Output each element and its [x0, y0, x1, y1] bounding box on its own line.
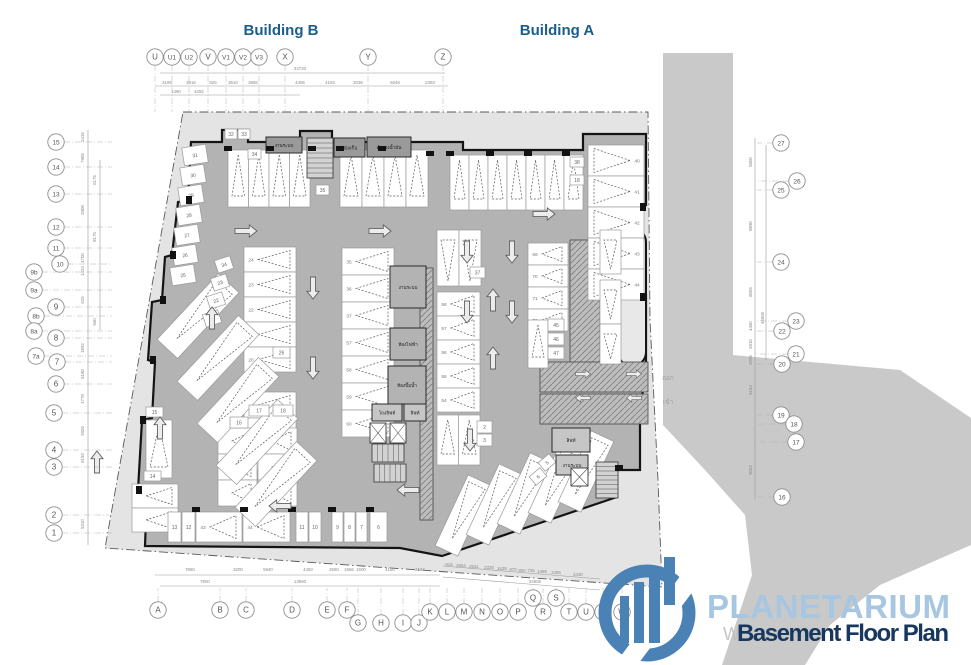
stall-number: 45 — [553, 323, 559, 329]
parking-stall — [437, 230, 459, 286]
dimension-label: 2430 — [573, 572, 583, 577]
stall-number: 46 — [553, 337, 559, 343]
grid-bubble-label: V2 — [239, 55, 247, 62]
grid-bubble-label: 21 — [792, 352, 800, 359]
stall-number: 59 — [346, 394, 352, 400]
stall-number: 16 — [236, 421, 242, 427]
floor-plan-page: 4041424344242322212019353637575859605857… — [0, 0, 971, 665]
dimension-label: 2550 — [329, 567, 339, 572]
wall-segment — [336, 146, 344, 151]
stall-number: 20 — [248, 357, 254, 363]
room-label: งานระบบ — [563, 463, 582, 468]
stall-number: 58 — [441, 302, 447, 308]
grid-bubble-label: I — [402, 619, 404, 628]
stall-number: 43 — [634, 251, 640, 257]
dimension-label: 4450 — [303, 567, 313, 572]
stall-number: 37 — [475, 271, 481, 277]
grid-bubble-label: S — [553, 594, 558, 603]
grid-bubble-label: U — [583, 608, 589, 617]
wall-segment — [640, 293, 646, 301]
grid-bubble-label: 24 — [777, 260, 785, 267]
stall-number: 34 — [252, 152, 258, 158]
stall-number: 36 — [346, 286, 352, 292]
stall-number: 33 — [241, 132, 247, 138]
dimension-label: 3856 — [248, 80, 258, 85]
logo-tagline: Basement Floor Plan — [737, 620, 949, 647]
room-label: ลิฟท์ — [566, 437, 575, 443]
grid-bubble-label: 16 — [778, 495, 786, 502]
dimension-label: 7800 — [200, 579, 210, 584]
dimension-label: 8005 — [748, 287, 753, 297]
dimension-label: 818 — [445, 562, 453, 567]
wall-segment — [640, 203, 646, 211]
grid-bubble-label: V — [205, 53, 211, 62]
grid-bubble-label: 8b — [32, 314, 40, 321]
wall-segment — [366, 507, 374, 512]
grid-bubble-label: U — [152, 53, 158, 62]
dimension-label: 2036 — [353, 80, 363, 85]
grid-bubble-label: 18 — [790, 422, 798, 429]
wall-segment — [524, 151, 532, 156]
stall-number: 70 — [532, 274, 538, 280]
grid-bubble-label: U1 — [168, 55, 177, 62]
grid-bubble-label: P — [515, 608, 520, 617]
ramp-hatch-pattern — [540, 362, 648, 392]
grid-bubble-label: 6 — [54, 380, 59, 389]
wall-segment — [240, 507, 248, 512]
stall-number: 8 — [348, 525, 351, 531]
room-label: งานระบบ — [275, 143, 294, 148]
parking-stall — [228, 150, 249, 207]
parking-stall — [384, 150, 406, 207]
dimension-label: 3910 — [748, 339, 753, 349]
grid-bubble-label: U2 — [185, 55, 194, 62]
dimension-label: 735 — [527, 568, 535, 573]
dimension-label: 6193 — [80, 453, 85, 463]
parking-stall — [450, 155, 469, 210]
parking-stall — [528, 320, 548, 368]
wall-segment — [378, 146, 386, 151]
grid-bubble-label: 9a — [30, 288, 38, 295]
stall-number: 10 — [312, 525, 318, 531]
grid-bubble-label: D — [289, 606, 295, 615]
grid-bubble-label: 11 — [53, 246, 60, 253]
stall-number: 35 — [346, 259, 352, 265]
wall-segment — [308, 146, 316, 151]
stall-number: 44 — [247, 525, 253, 531]
dimension-label: 34720 — [294, 66, 307, 71]
wall-segment — [140, 416, 146, 424]
grid-bubble-label: 7 — [55, 358, 60, 367]
stall-number: 44 — [634, 282, 640, 288]
dimension-label: 4700 — [80, 253, 85, 263]
room-label: งานระบบ — [399, 285, 418, 290]
dimension-label: 2325 — [484, 565, 494, 570]
stall-number: 40 — [634, 158, 640, 164]
dimension-label: 3926 — [80, 426, 85, 436]
grid-bubble-label: 25 — [777, 188, 785, 195]
stall-number: 58 — [346, 367, 352, 373]
grid-bubble-label: O — [497, 608, 503, 617]
grid-bubble-label: 1 — [52, 529, 57, 538]
dimension-label: 6648 — [390, 80, 400, 85]
stall-number: 11 — [299, 525, 304, 531]
dimension-label: 13560 — [294, 579, 307, 584]
stall-number: 47 — [553, 351, 559, 357]
building-a-title: Building A — [520, 22, 595, 39]
parking-stall — [488, 155, 507, 210]
stall-number: 17 — [256, 409, 262, 415]
plan-text: ออก — [662, 375, 674, 382]
dimension-label: 870 — [509, 567, 517, 572]
dimension-label: 1500 — [356, 567, 366, 572]
stall-number: 7 — [360, 525, 363, 531]
grid-bubble-label: 14 — [52, 165, 60, 172]
wall-segment — [615, 465, 623, 471]
dimension-label: 4450 — [748, 321, 753, 331]
grid-bubble-label: A — [155, 606, 161, 615]
grid-bubble-label: Q — [530, 594, 536, 603]
wall-segment — [224, 146, 232, 151]
grid-bubble-label: 27 — [777, 141, 785, 148]
stall-number: 43 — [200, 525, 206, 531]
grid-bubble-label: V1 — [222, 55, 230, 62]
grid-bubble-label: L — [445, 608, 450, 617]
stall-number: 14 — [150, 474, 156, 480]
room-label: ลิฟท์ — [410, 409, 419, 415]
dimension-label: 1424 — [80, 266, 85, 276]
dimension-label: 940 — [92, 318, 97, 326]
wall-segment — [192, 507, 200, 512]
room-label: ห้องเก็บ — [342, 143, 357, 150]
grid-bubble-label: 19 — [777, 413, 785, 420]
dimension-label: 1778 — [80, 394, 85, 404]
grid-bubble-label: X — [282, 53, 288, 62]
dimension-label: 5310 — [80, 519, 85, 529]
wall-segment — [426, 151, 434, 156]
grid-bubble-label: B — [217, 606, 222, 615]
parking-stall — [340, 150, 362, 207]
grid-bubble-label: N — [479, 608, 485, 617]
grid-bubble-label: 23 — [792, 319, 800, 326]
dimension-label: 3200 — [233, 567, 243, 572]
grid-bubble-label: Y — [365, 53, 371, 62]
parking-stall — [469, 155, 488, 210]
dimension-label: 2095 — [748, 355, 753, 365]
grid-bubble-label: G — [355, 619, 361, 628]
grid-bubble-label: 3 — [52, 463, 57, 472]
parking-stall — [437, 415, 459, 465]
stall-number: 6 — [377, 525, 380, 531]
dimension-label: 2164 — [415, 567, 425, 572]
grid-bubble-label: M — [461, 608, 468, 617]
stall-number: 42 — [634, 220, 640, 226]
stall-number: 55 — [441, 374, 447, 380]
dimension-label: 2195 — [162, 80, 172, 85]
stall-number: 60 — [346, 421, 352, 427]
wall-segment — [446, 151, 454, 156]
stall-number: 71 — [532, 296, 538, 302]
grid-bubble-label: 10 — [56, 262, 64, 269]
stall-number: 12 — [186, 525, 192, 531]
dimension-label: 800 — [518, 568, 526, 573]
dimension-label: 7905 — [80, 153, 85, 163]
grid-bubble-label: Z — [441, 53, 446, 62]
dimension-label: 5180 — [80, 369, 85, 379]
wall-segment — [486, 151, 494, 156]
dimension-label: 4292 — [194, 89, 204, 94]
grid-bubble-label: 2 — [52, 511, 57, 520]
grid-bubble-label: 9 — [54, 303, 59, 312]
stall-number: 18 — [574, 178, 580, 184]
grid-bubble-label: 12 — [52, 225, 60, 232]
grid-bubble-label: 17 — [792, 440, 800, 447]
stall-number: 38 — [574, 160, 580, 166]
wall-segment — [160, 296, 166, 304]
stall-number: 2 — [483, 425, 486, 431]
wall-segment — [136, 486, 142, 494]
grid-bubble-label: H — [378, 619, 384, 628]
room-label: ห้องไฟฟ้า — [398, 341, 418, 347]
parking-stall — [545, 155, 564, 210]
parking-stall — [507, 155, 526, 210]
stall-number: 37 — [346, 313, 352, 319]
plan-text: เข้า — [663, 398, 674, 406]
grid-bubble-label: 4 — [52, 446, 57, 455]
building-b-title: Building B — [244, 22, 319, 39]
parking-stall — [362, 150, 384, 207]
room-label: ห้องปั๊มน้ำ — [397, 382, 417, 388]
stall-number: 26 — [279, 351, 285, 357]
wall-segment — [328, 507, 336, 512]
dimension-label: 7860 — [185, 567, 195, 572]
grid-bubble-label: F — [345, 606, 350, 615]
dimension-label: 2393 — [425, 80, 435, 85]
dimension-label: 615 — [80, 296, 85, 304]
dimension-label: 5184 — [748, 385, 753, 395]
grid-bubble-label: 9b — [30, 270, 38, 277]
grid-bubble-label: 5 — [52, 409, 57, 418]
stall-number: 41 — [634, 189, 640, 195]
wall-segment — [170, 251, 176, 259]
dimension-label: 4406 — [295, 80, 305, 85]
stall-number: 35 — [320, 188, 326, 194]
dimension-label: 1635 — [497, 566, 507, 571]
dimension-label: 4150 — [385, 567, 395, 572]
dimension-label: 1490 — [171, 89, 181, 94]
stall-number: 57 — [441, 326, 447, 332]
wall-segment — [186, 196, 192, 204]
grid-bubble-label: V3 — [255, 55, 263, 62]
grid-bubble-label: 7a — [32, 354, 40, 361]
grid-bubble-label: 8a — [30, 329, 38, 336]
dimension-label: 825 — [209, 80, 217, 85]
dimension-label: 5940 — [263, 567, 273, 572]
stall-number: 15 — [152, 410, 158, 416]
grid-bubble-label: J — [417, 619, 421, 628]
grid-bubble-label: E — [324, 606, 329, 615]
parking-stall — [406, 150, 428, 207]
room-label: โถงลิฟท์ — [379, 409, 396, 415]
dimension-label: 6175 — [92, 175, 97, 185]
grid-bubble-label: 13 — [52, 192, 60, 199]
stall-number: 22 — [248, 307, 254, 313]
stall-number: 13 — [172, 525, 178, 531]
wall-segment — [562, 151, 570, 156]
dimension-label: 4193 — [325, 80, 335, 85]
parking-stall — [269, 150, 290, 207]
stall-number: 54 — [441, 398, 447, 404]
grid-bubble-label: K — [427, 608, 433, 617]
dimension-label: 2531 — [469, 564, 479, 569]
dimension-label: 5800 — [748, 157, 753, 167]
grid-bubble-label: 26 — [793, 179, 801, 186]
grid-bubble-label: T — [567, 608, 572, 617]
wall-segment — [150, 356, 156, 364]
dimension-label: 2554 — [456, 563, 466, 568]
parking-stall — [526, 155, 545, 210]
stall-number: 3 — [483, 438, 486, 444]
stall-number: 69 — [532, 252, 538, 258]
dimension-label: 3908 — [80, 205, 85, 215]
dimension-label: 9003 — [748, 465, 753, 475]
floor-plan-svg: 4041424344242322212019353637575859605857… — [0, 0, 971, 665]
dimension-label: 2415 — [80, 132, 85, 142]
stall-number: 24 — [248, 257, 254, 263]
dimension-label: 44500 — [760, 311, 765, 324]
dimension-label: 1656 — [344, 567, 354, 572]
grid-bubble-label: 20 — [778, 362, 786, 369]
dimension-label: 8890 — [748, 221, 753, 231]
dimension-label: 3916 — [186, 80, 196, 85]
dimension-label: 3510 — [228, 80, 238, 85]
grid-bubble-label: R — [540, 608, 546, 617]
grid-bubble-label: C — [243, 606, 249, 615]
stall-number: 32 — [228, 132, 234, 138]
stall-number: 56 — [441, 350, 447, 356]
grid-bubble-label: 15 — [52, 140, 60, 147]
dimension-label: 8175 — [92, 232, 97, 242]
dimension-label: 2455 — [551, 570, 561, 575]
dimension-label: 25950 — [529, 579, 542, 584]
grid-bubble-label: 8 — [54, 334, 59, 343]
stall-number: 57 — [346, 340, 352, 346]
dimension-label: 1892 — [80, 343, 85, 353]
stall-number: 9 — [336, 525, 339, 531]
grid-bubble-label: 22 — [778, 329, 786, 336]
stall-number: 23 — [248, 282, 254, 288]
dimension-label: 1459 — [537, 569, 547, 574]
stall-number: 18 — [280, 409, 286, 415]
wall-segment — [266, 146, 274, 151]
